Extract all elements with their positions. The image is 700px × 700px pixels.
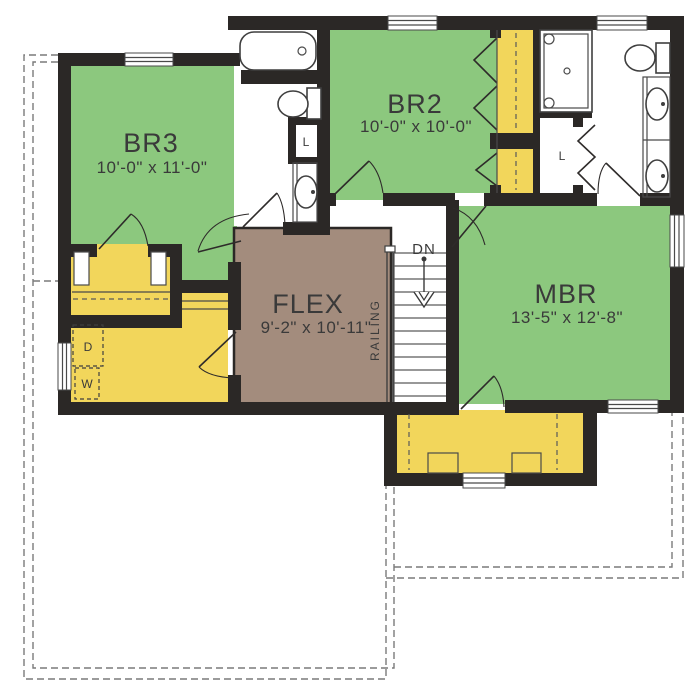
mbr-side-window — [670, 215, 684, 267]
br3-label: BR3 — [123, 128, 179, 158]
flex-dims: 9'-2" x 10'-11" — [261, 318, 372, 337]
br2-label: BR2 — [387, 89, 443, 119]
toilet — [625, 43, 670, 73]
dryer-label: D — [84, 340, 93, 354]
shelf-nook-floor — [182, 293, 228, 328]
down-label: DN — [412, 241, 436, 258]
mbr-label: MBR — [535, 279, 598, 309]
toilet — [278, 88, 321, 119]
br3-window — [125, 53, 173, 66]
br3-closet-shelf — [151, 252, 166, 285]
shower — [540, 30, 592, 112]
floor-plan-canvas: BR3 10'-0" x 11'-0" BR2 10'-0" x 10'-0" … — [0, 0, 700, 700]
bathtub — [240, 32, 316, 70]
flex-label: FLEX — [272, 289, 344, 319]
railing-label: RAILING — [368, 299, 382, 361]
br3-closet-shelf — [74, 252, 89, 285]
mbr-closet-window — [463, 473, 505, 488]
hall-floor — [330, 206, 446, 223]
br2-closet-floor — [497, 30, 533, 193]
br2-window — [388, 16, 437, 30]
mbr-closet-floor — [397, 410, 583, 473]
floor-plan: BR3 10'-0" x 11'-0" BR2 10'-0" x 10'-0" … — [0, 0, 700, 700]
br3-door-gap-floor — [97, 244, 148, 257]
br2-dims: 10'-0" x 10'-0" — [360, 117, 472, 136]
br3-dims: 10'-0" x 11'-0" — [97, 158, 208, 177]
mbr-doorway-floor — [455, 193, 484, 206]
hall-linen-label: L — [303, 135, 310, 149]
washer-label: W — [81, 377, 93, 391]
master-linen-label: L — [559, 149, 566, 163]
mbr-bottom-window — [608, 400, 658, 413]
master-bath-window — [597, 16, 647, 30]
laundry-window — [58, 343, 71, 390]
mbr-dims: 13'-5" x 12'-8" — [511, 308, 623, 327]
